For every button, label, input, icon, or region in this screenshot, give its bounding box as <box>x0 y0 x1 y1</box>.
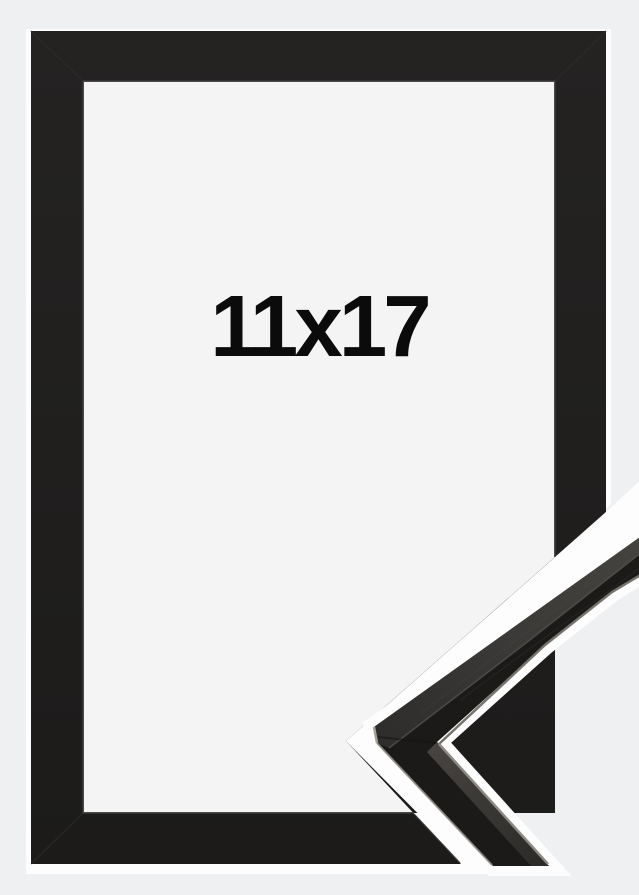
product-image: 11x17 <box>0 0 639 895</box>
size-label: 11x17 <box>83 253 555 401</box>
frame-photo-graphic <box>0 0 639 895</box>
